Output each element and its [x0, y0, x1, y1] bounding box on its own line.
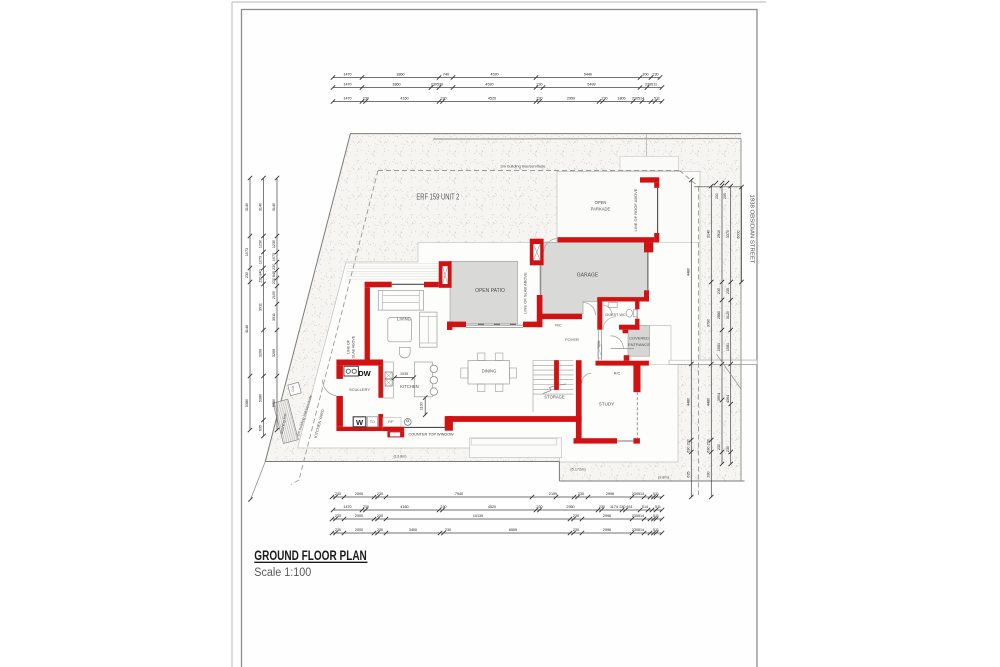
- svg-text:230: 230: [652, 72, 658, 76]
- svg-text:3140: 3140: [707, 230, 711, 238]
- svg-text:GUEST WC: GUEST WC: [605, 313, 626, 317]
- svg-text:511: 511: [654, 96, 660, 100]
- svg-text:2000: 2000: [355, 528, 363, 532]
- svg-text:230: 230: [536, 505, 542, 509]
- svg-text:(5.172m): (5.172m): [570, 468, 586, 472]
- svg-text:230: 230: [536, 82, 542, 86]
- svg-text:230: 230: [573, 514, 579, 518]
- svg-text:W/M: W/M: [597, 340, 601, 347]
- svg-text:230: 230: [715, 193, 719, 199]
- svg-text:230: 230: [573, 528, 579, 532]
- svg-text:230: 230: [440, 505, 446, 509]
- svg-text:4160: 4160: [400, 96, 408, 100]
- svg-text:GARAGE: GARAGE: [577, 273, 599, 279]
- svg-text:LINE OF: LINE OF: [347, 339, 351, 354]
- svg-text:230: 230: [578, 492, 584, 496]
- svg-text:230: 230: [377, 528, 383, 532]
- svg-text:1230: 1230: [272, 240, 276, 248]
- svg-text:511: 511: [653, 492, 659, 496]
- svg-text:1035: 1035: [400, 372, 408, 376]
- svg-text:3370: 3370: [726, 230, 730, 238]
- svg-text:230: 230: [335, 514, 341, 518]
- svg-text:2100: 2100: [272, 291, 276, 299]
- svg-text:230 840 230: 230 840 230: [272, 264, 276, 285]
- svg-text:(13.8m): (13.8m): [393, 454, 407, 458]
- svg-text:2910: 2910: [717, 230, 721, 238]
- svg-text:230: 230: [707, 471, 711, 477]
- svg-text:230 631: 230 631: [619, 505, 632, 509]
- svg-text:635: 635: [687, 471, 691, 477]
- svg-text:Scale 1:100: Scale 1:100: [254, 567, 311, 579]
- svg-text:3860: 3860: [392, 82, 400, 86]
- svg-text:W: W: [356, 418, 364, 427]
- svg-text:F/F: F/F: [388, 420, 394, 424]
- svg-text:5440: 5440: [584, 72, 592, 76]
- svg-text:1073: 1073: [259, 256, 263, 264]
- svg-text:2199: 2199: [549, 492, 557, 496]
- svg-text:1230: 1230: [259, 240, 263, 248]
- svg-text:3120: 3120: [726, 311, 730, 319]
- svg-text:230514: 230514: [632, 96, 644, 100]
- svg-text:6000: 6000: [737, 230, 741, 238]
- svg-text:3269: 3269: [259, 349, 263, 357]
- svg-text:STUDY: STUDY: [599, 402, 614, 407]
- svg-text:4160: 4160: [400, 505, 408, 509]
- svg-text:230: 230: [445, 528, 451, 532]
- svg-text:4520: 4520: [488, 96, 496, 100]
- svg-text:4364: 4364: [726, 395, 730, 403]
- svg-text:GROUND FLOOR PLAN: GROUND FLOOR PLAN: [254, 548, 366, 563]
- svg-text:230: 230: [363, 96, 369, 100]
- svg-text:230530: 230530: [431, 82, 443, 86]
- svg-text:SCULLERY: SCULLERY: [349, 387, 370, 392]
- svg-text:230: 230: [245, 272, 249, 278]
- svg-text:STORAGE: STORAGE: [544, 395, 565, 400]
- svg-text:630 230: 630 230: [707, 439, 711, 452]
- svg-text:300: 300: [642, 72, 648, 76]
- svg-text:R/C: R/C: [614, 372, 621, 376]
- svg-text:2880: 2880: [717, 311, 721, 319]
- svg-text:3911: 3911: [259, 303, 263, 311]
- svg-text:230 840: 230 840: [259, 269, 263, 282]
- svg-text:1470: 1470: [343, 505, 351, 509]
- svg-text:3140: 3140: [259, 203, 263, 211]
- svg-text:1100: 1100: [419, 402, 423, 410]
- svg-text:230514: 230514: [632, 528, 644, 532]
- svg-text:3911: 3911: [272, 313, 276, 321]
- svg-text:511: 511: [653, 528, 659, 532]
- svg-text:2950: 2950: [566, 505, 574, 509]
- svg-text:3140: 3140: [245, 203, 249, 211]
- svg-text:4520: 4520: [488, 505, 496, 509]
- svg-text:4146: 4146: [245, 325, 249, 333]
- svg-text:(9.8m): (9.8m): [658, 476, 670, 480]
- svg-text:4480: 4480: [687, 268, 691, 276]
- svg-text:ERF 159 UNIT 2: ERF 159 UNIT 2: [416, 193, 459, 202]
- svg-text:230: 230: [726, 446, 730, 452]
- svg-text:230: 230: [601, 96, 607, 100]
- svg-text:10139: 10139: [473, 514, 483, 518]
- svg-text:ENTRANCE: ENTRANCE: [628, 342, 650, 347]
- svg-text:PARKADE: PARKADE: [591, 207, 611, 212]
- svg-text:1805: 1805: [617, 96, 625, 100]
- svg-text:COVERED: COVERED: [629, 336, 649, 341]
- svg-text:3400: 3400: [409, 528, 417, 532]
- svg-text:COUNTER TOP WINDOW: COUNTER TOP WINDOW: [409, 432, 455, 436]
- svg-text:3860: 3860: [396, 72, 404, 76]
- svg-text:230: 230: [335, 528, 341, 532]
- svg-text:511: 511: [655, 505, 661, 509]
- svg-text:LINE OF ROOF ABOVE: LINE OF ROOF ABOVE: [633, 188, 638, 231]
- svg-text:SLAB ABOVE: SLAB ABOVE: [352, 335, 356, 358]
- svg-text:TO: TO: [370, 420, 375, 424]
- svg-text:5380: 5380: [259, 394, 263, 402]
- svg-text:1938 OBSIDIAN STREET: 1938 OBSIDIAN STREET: [749, 195, 755, 265]
- svg-text:235: 235: [723, 193, 727, 199]
- svg-text:1470: 1470: [343, 82, 351, 86]
- svg-text:D.B: D.B: [291, 386, 295, 392]
- svg-text:LINE OF SLAB ABOVE: LINE OF SLAB ABOVE: [522, 272, 527, 314]
- svg-text:230511: 230511: [645, 82, 657, 86]
- svg-text:3269: 3269: [272, 349, 276, 357]
- svg-text:230: 230: [717, 288, 721, 294]
- svg-text:3790: 3790: [707, 319, 711, 327]
- svg-text:2996: 2996: [603, 514, 611, 518]
- svg-text:OPEN PATIO: OPEN PATIO: [475, 288, 505, 294]
- svg-text:635: 635: [259, 425, 263, 431]
- svg-text:LIVING: LIVING: [397, 317, 411, 322]
- svg-text:1581: 1581: [726, 343, 730, 351]
- svg-text:KITCHEN: KITCHEN: [400, 384, 418, 389]
- svg-text:235: 235: [726, 288, 730, 294]
- svg-text:630 230: 630 230: [687, 439, 691, 452]
- svg-text:5380: 5380: [272, 399, 276, 407]
- svg-text:230: 230: [536, 96, 542, 100]
- svg-text:230: 230: [377, 492, 383, 496]
- svg-text:4520: 4520: [485, 82, 493, 86]
- svg-text:5380: 5380: [245, 399, 249, 407]
- svg-text:230: 230: [717, 444, 721, 450]
- svg-text:230: 230: [377, 514, 383, 518]
- svg-text:2996: 2996: [606, 492, 614, 496]
- svg-text:1470: 1470: [343, 72, 351, 76]
- svg-text:511: 511: [653, 514, 659, 518]
- svg-text:R/C: R/C: [555, 324, 562, 328]
- svg-text:1470: 1470: [343, 96, 351, 100]
- svg-text:FOYER: FOYER: [565, 337, 579, 342]
- svg-text:1581: 1581: [717, 343, 721, 351]
- svg-text:230: 230: [335, 492, 341, 496]
- svg-text:2000: 2000: [355, 492, 363, 496]
- svg-text:6509: 6509: [509, 528, 517, 532]
- svg-text:230514: 230514: [632, 492, 644, 496]
- svg-text:1174: 1174: [610, 505, 618, 509]
- svg-text:5499: 5499: [587, 82, 595, 86]
- svg-text:2000: 2000: [355, 514, 363, 518]
- svg-text:DINING: DINING: [482, 369, 497, 374]
- svg-text:2950: 2950: [567, 96, 575, 100]
- svg-text:230514: 230514: [632, 514, 644, 518]
- svg-text:3904: 3904: [717, 393, 721, 401]
- svg-text:4520: 4520: [490, 72, 498, 76]
- svg-text:4480: 4480: [707, 398, 711, 406]
- svg-text:DW: DW: [358, 369, 371, 378]
- svg-text:2996: 2996: [603, 528, 611, 532]
- svg-text:514: 514: [642, 505, 648, 509]
- svg-text:740: 740: [443, 72, 449, 76]
- svg-text:1073: 1073: [272, 253, 276, 261]
- svg-text:230: 230: [440, 96, 446, 100]
- svg-text:3140: 3140: [272, 203, 276, 211]
- svg-text:230: 230: [599, 505, 605, 509]
- svg-text:7940: 7940: [455, 492, 463, 496]
- svg-text:230: 230: [363, 505, 369, 509]
- svg-text:1073: 1073: [245, 248, 249, 256]
- svg-text:3m building line/servitude: 3m building line/servitude: [500, 164, 546, 169]
- svg-text:4480: 4480: [687, 398, 691, 406]
- svg-text:OPEN: OPEN: [595, 200, 607, 205]
